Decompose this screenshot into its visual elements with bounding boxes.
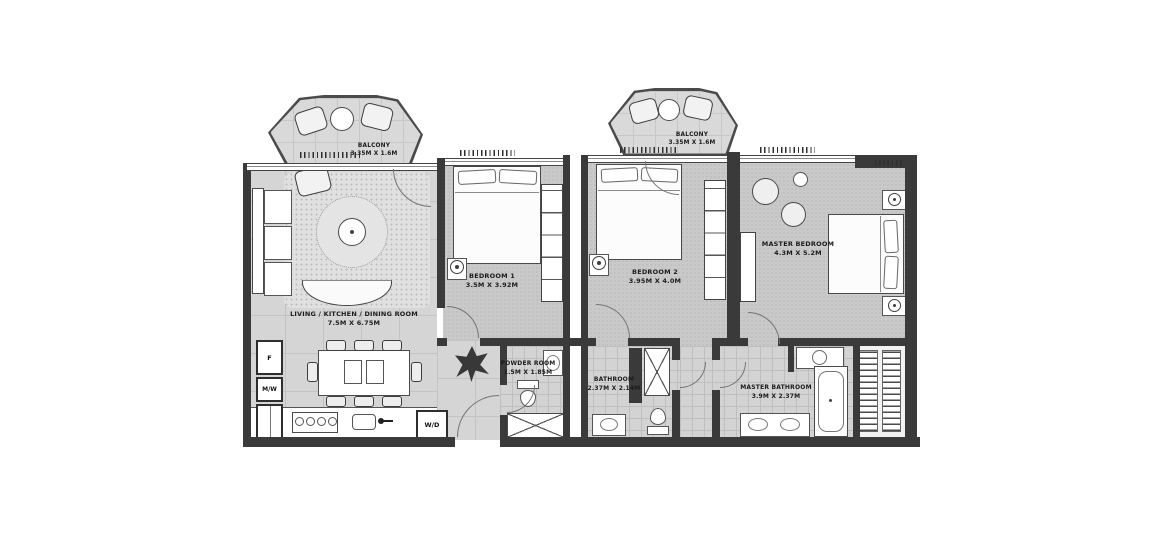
exterior-wall-bottom xyxy=(243,437,455,447)
exterior-wall-left xyxy=(243,163,251,447)
bedroom1-window xyxy=(445,158,563,166)
bedroom1-dims: 3.5M X 3.92M xyxy=(466,281,518,290)
wall-bedroom2-master xyxy=(727,152,740,346)
bathroom-dims: 2.37M X 2.14M xyxy=(588,385,641,394)
party-wall xyxy=(563,155,570,440)
balcony-middle-label: BALCONY 3.35M X 1.6M xyxy=(668,131,715,148)
dining-chair-icon xyxy=(354,396,374,407)
master-bedroom-dims: 4.3M X 5.2M xyxy=(762,249,834,258)
wall-bedrooms-bottom xyxy=(628,338,680,346)
toilet-partition-wall xyxy=(788,346,794,372)
bathroom-basin-icon xyxy=(600,418,618,431)
bathroom-name: BATHROOM xyxy=(588,376,641,385)
dining-chair-icon xyxy=(382,396,402,407)
lamp-icon xyxy=(888,299,901,312)
dining-table-item xyxy=(366,360,384,384)
fridge-label: F xyxy=(267,354,271,362)
bed-blanket-line xyxy=(455,192,539,193)
microwave: M/W xyxy=(256,377,283,402)
wall-hatch xyxy=(875,160,903,166)
sofa-cushion xyxy=(264,226,292,260)
living-room-dims: 7.5M X 6.75M xyxy=(290,319,418,328)
wall-hatch xyxy=(300,152,360,158)
master-bedroom-label: MASTER BEDROOM 4.3M X 5.2M xyxy=(762,240,834,259)
bathroom-toilet-tank-icon xyxy=(647,426,669,435)
dining-chair-icon xyxy=(411,362,422,382)
hob-burner-icon xyxy=(295,417,304,426)
washer-dryer: W/D xyxy=(416,410,448,439)
bedroom2-label: BEDROOM 2 3.95M X 4.0M xyxy=(629,268,681,287)
master-bathroom-wall-left xyxy=(712,390,720,437)
master-toilet-icon xyxy=(812,350,827,365)
master-bathroom-wall-right xyxy=(853,346,860,437)
wall-hatch xyxy=(760,147,815,153)
master-bathroom-dims: 3.9M X 2.37M xyxy=(740,393,812,402)
bed-blanket-line xyxy=(880,216,881,292)
dining-chair-icon xyxy=(307,362,318,382)
bedroom2-dims: 3.95M X 4.0M xyxy=(629,277,681,286)
master-dresser xyxy=(740,232,756,302)
fridge: F xyxy=(256,340,283,375)
pillow-icon xyxy=(883,220,899,254)
pillow-icon xyxy=(499,169,538,185)
foyer-closet xyxy=(507,413,564,438)
bathtub-drain-icon xyxy=(829,399,832,402)
floorplan-canvas: BALCONY 3.35M X 1.6M BALCONY 3.35M X 1.6… xyxy=(0,0,1170,550)
wall-hatch xyxy=(460,150,515,156)
bathtub-icon xyxy=(814,366,848,437)
pillow-icon xyxy=(458,169,497,185)
pillow-icon xyxy=(883,256,899,290)
dining-table-item xyxy=(344,360,362,384)
bathroom-wall-right xyxy=(672,390,680,437)
powder-room-name: POWDER ROOM xyxy=(501,360,556,369)
party-wall xyxy=(581,155,588,440)
powder-room-label: POWDER ROOM 1.5M X 1.85M xyxy=(501,360,556,377)
master-bedroom-name: MASTER BEDROOM xyxy=(762,240,834,249)
pillow-icon xyxy=(601,167,639,183)
wall-living-bedroom1 xyxy=(437,158,445,308)
wall-bedrooms-bottom xyxy=(480,338,596,346)
closet-hanging-rail xyxy=(859,350,878,432)
dining-chair-icon xyxy=(354,340,374,351)
bathroom-wall-right xyxy=(672,346,680,360)
hob-burner-icon xyxy=(306,417,315,426)
master-basin-icon xyxy=(780,418,800,431)
kitchen-sink-icon xyxy=(352,414,376,430)
closet-hanging-rail xyxy=(882,350,901,432)
living-room-name: LIVING / KITCHEN / DINING ROOM xyxy=(290,310,418,319)
living-room-label: LIVING / KITCHEN / DINING ROOM 7.5M X 6.… xyxy=(290,310,418,329)
dining-chair-icon xyxy=(326,396,346,407)
master-basin-icon xyxy=(748,418,768,431)
balcony-middle-name: BALCONY xyxy=(668,131,715,139)
wall-bedrooms-bottom xyxy=(778,338,905,346)
shower-icon xyxy=(644,348,670,396)
wall-bedrooms-bottom xyxy=(437,338,447,346)
master-armchair-icon xyxy=(781,202,806,227)
bathroom-toilet-bowl-icon xyxy=(650,408,666,425)
bedroom1-name: BEDROOM 1 xyxy=(466,272,518,281)
exterior-wall-right xyxy=(905,155,917,447)
balcony-table-icon xyxy=(658,99,680,121)
lamp-icon xyxy=(450,260,464,274)
balcony-left-name: BALCONY xyxy=(350,142,397,150)
master-armchair-icon xyxy=(752,178,779,205)
lobby-floor xyxy=(680,346,712,437)
powder-room-wall xyxy=(500,415,507,440)
bedroom2-name: BEDROOM 2 xyxy=(629,268,681,277)
balcony-table-icon xyxy=(330,107,354,131)
powder-room-dims: 1.5M X 1.85M xyxy=(501,369,556,378)
microwave-label: M/W xyxy=(262,386,277,393)
master-bathroom-name: MASTER BATHROOM xyxy=(740,384,812,393)
dining-chair-icon xyxy=(326,340,346,351)
sofa-cushion xyxy=(264,262,292,296)
master-bathroom-label: MASTER BATHROOM 3.9M X 2.37M xyxy=(740,384,812,401)
master-bathroom-wall-left xyxy=(712,346,720,360)
pantry-cabinet xyxy=(256,404,283,439)
dining-table xyxy=(318,350,410,396)
wall-bedrooms-bottom xyxy=(712,338,748,346)
hob-burner-icon xyxy=(317,417,326,426)
bedroom1-label: BEDROOM 1 3.5M X 3.92M xyxy=(466,272,518,291)
dining-chair-icon xyxy=(382,340,402,351)
washer-dryer-label: W/D xyxy=(425,421,440,429)
sofa-back xyxy=(252,188,264,294)
bedroom2-wardrobe xyxy=(704,180,726,300)
sofa-cushion xyxy=(264,190,292,224)
master-window xyxy=(740,155,855,163)
lamp-icon xyxy=(888,193,901,206)
hob-burner-icon xyxy=(328,417,337,426)
master-side-table-icon xyxy=(793,172,808,187)
lamp-icon xyxy=(592,256,606,270)
coffee-table-dot xyxy=(350,230,354,234)
bathroom-label: BATHROOM 2.37M X 2.14M xyxy=(588,376,641,393)
faucet-spout-icon xyxy=(383,420,393,422)
bedroom1-wardrobe xyxy=(541,184,563,302)
wall-hatch xyxy=(620,147,678,153)
